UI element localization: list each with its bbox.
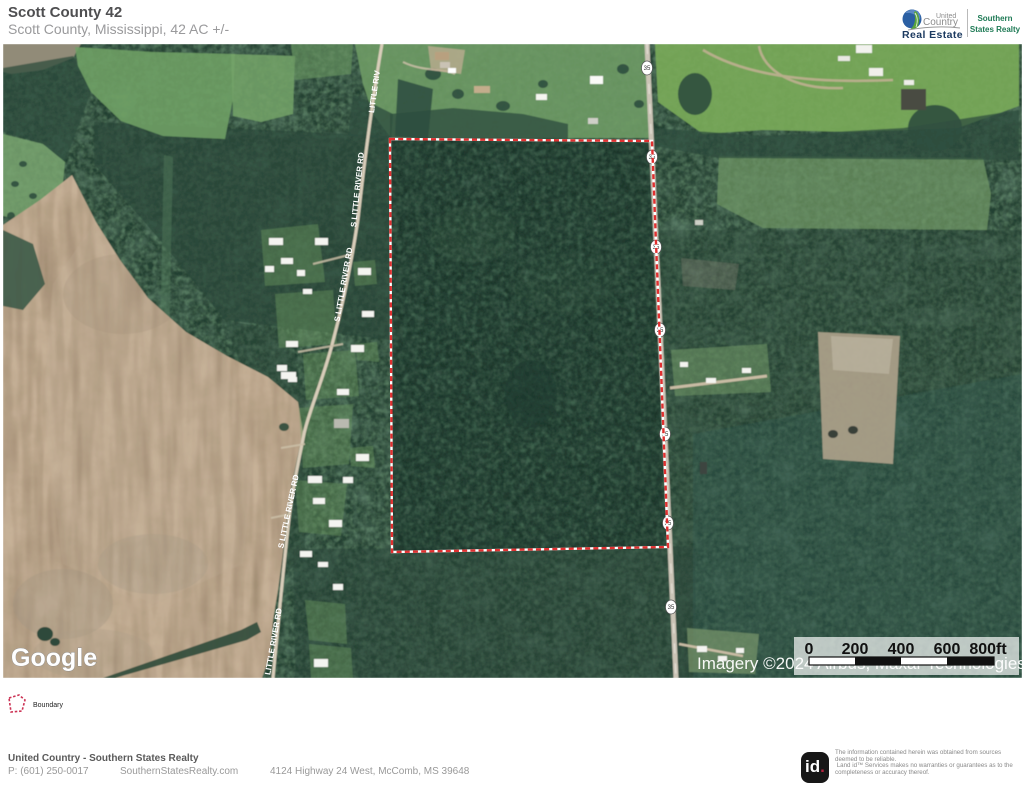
svg-text:States Realty: States Realty [970,25,1021,34]
svg-text:Google: Google [11,644,97,672]
svg-text:800ft: 800ft [969,641,1007,658]
svg-text:200: 200 [842,641,869,658]
svg-text:Real Estate: Real Estate [902,29,963,41]
svg-text:Southern: Southern [977,14,1012,23]
svg-text:35: 35 [668,605,675,611]
svg-text:400: 400 [888,641,915,658]
svg-text:35: 35 [644,66,651,72]
svg-text:Country: Country [923,17,958,28]
svg-text:Boundary: Boundary [33,702,63,709]
svg-text:0: 0 [805,641,814,658]
svg-text:600: 600 [934,641,961,658]
